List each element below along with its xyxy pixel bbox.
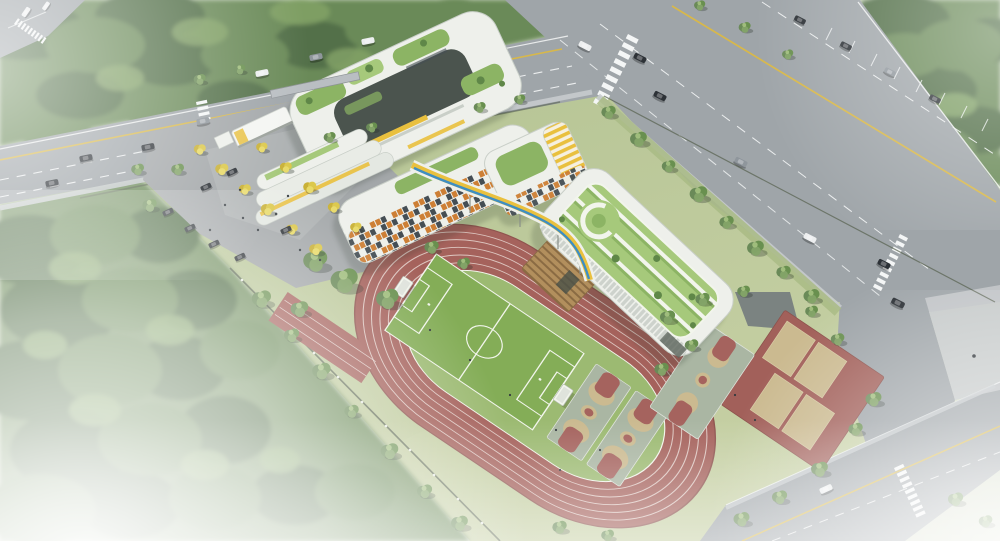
aerial-render — [0, 0, 1000, 541]
scene-canvas — [0, 0, 1000, 541]
